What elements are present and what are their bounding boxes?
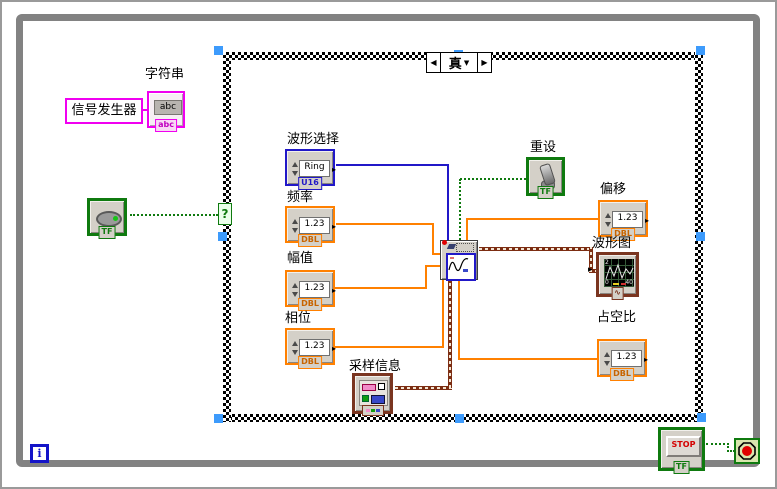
waveform-select-label: 波形选择 [287, 133, 339, 147]
amplitude-value: 1.23▸ [299, 281, 330, 298]
frequency-wire-v[interactable] [432, 223, 434, 255]
amplitude-label: 幅值 [287, 252, 313, 266]
pen-icon [447, 244, 456, 249]
duty-cycle-label: 占空比 [597, 311, 636, 325]
waveform-chart-indicator[interactable]: 2 0 40 ∿ [596, 252, 639, 297]
sampling-info-wire-v[interactable] [448, 280, 452, 388]
stop-sign-icon [738, 442, 756, 460]
slide-switch-dot [113, 216, 118, 221]
increment-decrement-icon [291, 340, 299, 356]
amplitude-control[interactable]: 1.23▸ DBL [285, 270, 335, 307]
cluster-tab-dot [371, 409, 375, 412]
frequency-wire-h[interactable] [336, 223, 434, 225]
selection-handle-top-left[interactable] [214, 46, 223, 55]
stop-type-tab: TF [673, 461, 690, 474]
selection-handle-left-mid[interactable] [218, 232, 227, 241]
while-loop-iteration-terminal[interactable]: i [30, 444, 49, 463]
cluster-tab-dot [376, 409, 380, 412]
output-arrow-icon: ▸ [332, 342, 336, 355]
boolean-type-tab: TF [99, 226, 116, 239]
duty-cycle-wire-v[interactable] [458, 280, 460, 360]
phase-label: 相位 [285, 312, 311, 326]
amplitude-wire-h[interactable] [335, 287, 427, 289]
string-indicator[interactable]: abc abc [147, 91, 185, 128]
waveform-chart-label: 波形图 [592, 237, 631, 251]
waveform-select-wire-v[interactable] [447, 164, 449, 242]
reset-label: 重设 [530, 141, 556, 155]
phase-wire-v[interactable] [442, 280, 444, 348]
reset-type-tab: TF [537, 186, 554, 199]
frequency-value: 1.23▸ [299, 217, 330, 234]
selection-handle-top-right[interactable] [696, 46, 705, 55]
waveform-select-ring-control[interactable]: Ring▸ U16 [285, 149, 335, 186]
increment-decrement-icon [291, 161, 299, 177]
duty-cycle-value: 1.23▸ [611, 350, 642, 367]
reset-toggle-control[interactable]: TF [526, 157, 565, 196]
frequency-label: 频率 [287, 191, 313, 205]
phase-control[interactable]: 1.23▸ DBL [285, 328, 335, 365]
cluster-item-icon [362, 395, 369, 402]
input-arrow-icon: ▸ [588, 265, 593, 275]
case-prev-arrow[interactable]: ◀ [427, 53, 441, 72]
cluster-item-icon [378, 383, 385, 390]
waveform-out-wire-h[interactable] [479, 247, 592, 251]
output-arrow-icon: ▸ [332, 284, 336, 297]
stop-wire-h[interactable] [706, 443, 729, 445]
cluster-item-icon [371, 395, 385, 404]
string-type-tab: abc [155, 119, 177, 132]
output-arrow-icon: ▸ [332, 220, 336, 233]
string-indicator-label: 字符串 [145, 68, 184, 82]
sampling-info-label: 采样信息 [349, 360, 401, 374]
duty-cycle-type-tab: DBL [610, 368, 634, 381]
ring-type-tab: U16 [298, 177, 322, 190]
amplitude-wire-v[interactable] [425, 265, 427, 289]
waveform-type-tab: ∿ [611, 287, 624, 300]
reset-wire-h[interactable] [460, 178, 526, 180]
offset-wire-h[interactable] [466, 218, 600, 220]
offset-label: 偏移 [600, 183, 626, 197]
cluster-item-icon [362, 384, 376, 391]
duty-cycle-control[interactable]: 1.23▸ DBL [597, 339, 647, 377]
increment-decrement-icon [604, 212, 612, 228]
sampling-info-cluster[interactable] [352, 373, 393, 414]
loop-condition-terminal[interactable] [734, 438, 760, 464]
case-selector-terminal[interactable]: ? [218, 203, 232, 225]
offset-wire-v[interactable] [466, 219, 468, 242]
boolean-wire-to-case-selector[interactable] [130, 214, 218, 216]
dotted-frame-icon [456, 243, 474, 252]
selection-handle-bottom-mid[interactable] [455, 414, 464, 423]
basic-function-generator-subvi[interactable] [440, 240, 478, 280]
phase-value: 1.23▸ [299, 339, 330, 356]
cluster-icon [359, 380, 388, 406]
chevron-down-icon[interactable]: ▼ [464, 59, 469, 67]
amplitude-type-tab: DBL [298, 298, 322, 311]
coercion-dot [442, 240, 447, 245]
offset-value: 1.23▸ [612, 211, 643, 228]
case-value[interactable]: 真 ▼ [441, 53, 477, 72]
frequency-type-tab: DBL [298, 234, 322, 247]
output-arrow-icon: ▸ [645, 214, 649, 227]
phase-wire-h[interactable] [335, 346, 444, 348]
phase-type-tab: DBL [298, 356, 322, 369]
offset-control[interactable]: 1.23▸ DBL [598, 200, 648, 237]
increment-decrement-icon [603, 351, 611, 367]
increment-decrement-icon [291, 282, 299, 298]
output-arrow-icon: ▸ [644, 353, 648, 366]
increment-decrement-icon [291, 218, 299, 234]
string-indicator-value: abc [154, 100, 182, 115]
reset-wire-v[interactable] [459, 179, 461, 240]
case-selector-label: ◀ 真 ▼ ▶ [426, 52, 492, 73]
waveform-select-wire-h[interactable] [336, 164, 449, 166]
cluster-tab-dot [366, 409, 370, 412]
string-constant[interactable]: 信号发生器 [65, 98, 143, 124]
output-arrow-icon: ▸ [332, 163, 336, 176]
selection-handle-bottom-left[interactable] [214, 414, 223, 423]
sampling-info-wire-h[interactable] [395, 386, 452, 390]
stop-button-control[interactable]: STOP TF [658, 427, 705, 471]
case-next-arrow[interactable]: ▶ [477, 53, 491, 72]
ring-value: Ring▸ [299, 160, 330, 177]
labview-block-diagram: i ◀ 真 ▼ [0, 0, 777, 489]
selection-handle-bottom-right[interactable] [697, 413, 706, 422]
cluster-type-tab [362, 405, 384, 416]
stop-button-face[interactable]: STOP [666, 436, 701, 457]
waveform-generator-icon [446, 253, 476, 281]
duty-cycle-wire-h[interactable] [458, 358, 599, 360]
case-selector-value: 真 [449, 53, 462, 72]
mini-graph-icon: 2 0 40 [604, 259, 634, 287]
frequency-control[interactable]: 1.23▸ DBL [285, 206, 335, 243]
selection-handle-right-mid[interactable] [696, 232, 705, 241]
boolean-slide-switch[interactable]: TF [87, 198, 127, 236]
slide-switch-icon [96, 211, 122, 227]
